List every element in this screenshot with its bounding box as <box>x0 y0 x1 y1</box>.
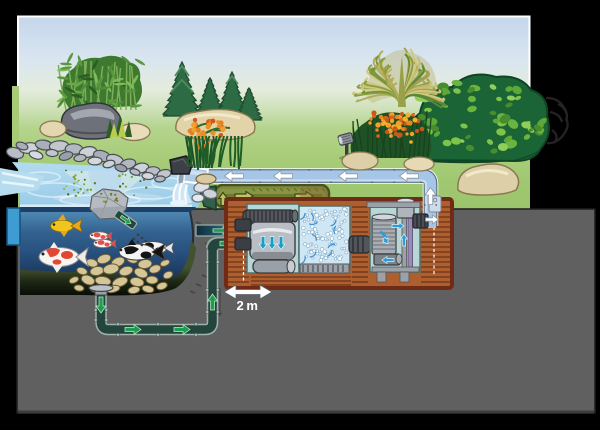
svg-text:2 m: 2 m <box>237 298 258 313</box>
